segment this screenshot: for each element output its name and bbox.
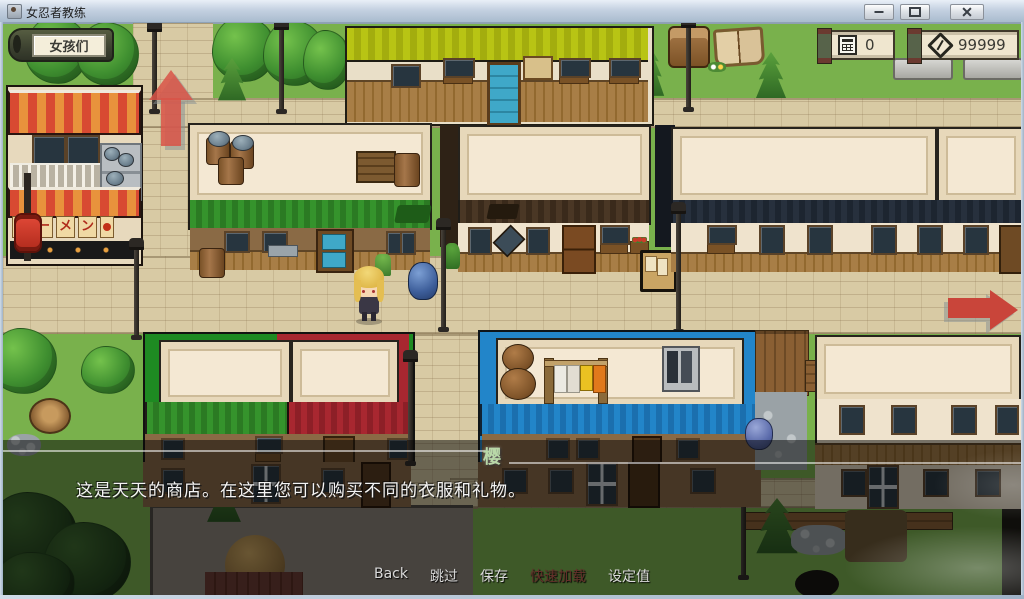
fog-glow	[933, 450, 1021, 520]
window	[559, 58, 591, 78]
right-arrow-head	[990, 290, 1018, 330]
window	[32, 135, 66, 165]
building-green-eave	[188, 123, 432, 268]
building-navy-eave	[655, 125, 1021, 270]
ramen-shop: ラ ー メ ン	[6, 85, 143, 266]
wainscot	[671, 252, 1021, 272]
rooftop	[671, 127, 937, 204]
window-shutters	[386, 231, 398, 251]
barrel-top	[232, 135, 254, 151]
counter-points: 0	[829, 30, 895, 60]
window	[609, 58, 641, 78]
rooftop	[458, 125, 651, 204]
minimize-button[interactable]	[864, 4, 894, 20]
red-lantern	[14, 213, 42, 253]
eave-emblem	[486, 204, 519, 219]
close-button[interactable]	[950, 4, 984, 20]
pot	[118, 153, 134, 167]
window-title: 女忍者教练	[26, 4, 86, 21]
menu-back[interactable]: Back	[374, 566, 408, 586]
hanging-cloth-yellow	[580, 365, 593, 391]
sprite-shadow	[356, 318, 382, 325]
tree	[303, 30, 351, 90]
sprite-eye	[372, 290, 375, 293]
up-arrow[interactable]	[147, 66, 197, 158]
window	[707, 225, 737, 245]
headband-knot-icon	[13, 35, 21, 53]
door	[562, 225, 596, 274]
tree	[3, 328, 57, 394]
flowers	[708, 62, 726, 72]
lamppost	[686, 26, 691, 110]
counter-gold-value: 99999	[958, 36, 1006, 54]
hanging-cloth-white	[567, 365, 580, 393]
keg-barrel	[218, 157, 244, 185]
bench	[893, 58, 953, 80]
dialogue-text: 这是天天的商店。在这里您可以购买不同的衣服和礼物。	[76, 476, 526, 501]
window	[951, 405, 977, 435]
menu-settings[interactable]: 设定值	[608, 566, 650, 586]
hanging-cloth-orange	[593, 365, 606, 393]
window	[600, 225, 630, 245]
ramen-sign-stamp	[100, 216, 114, 238]
girls-button[interactable]: 女孩们	[8, 28, 114, 62]
window-titlebar[interactable]: 女忍者教练	[0, 0, 1024, 23]
window	[871, 225, 897, 255]
roof-window	[662, 346, 700, 392]
eave-emblem	[394, 205, 432, 223]
keg-barrel	[394, 153, 420, 187]
lamppost	[279, 28, 284, 112]
bush	[81, 346, 135, 394]
speaker-divider-left	[3, 450, 487, 452]
lamppost	[676, 212, 681, 332]
app-window: ラ ー メ ン	[0, 0, 1024, 599]
eave-red	[287, 402, 413, 436]
roof-yellow	[347, 28, 648, 62]
window	[66, 135, 100, 165]
eave-blue	[480, 404, 763, 436]
wood-fence	[755, 330, 809, 396]
framed-picture	[468, 227, 492, 255]
eave-green	[145, 402, 291, 436]
rooftop	[815, 335, 1021, 403]
panel-band	[907, 28, 922, 64]
blue-vase	[408, 262, 438, 300]
door-blue-glass	[487, 62, 521, 126]
building-yellow-roof	[345, 26, 654, 126]
right-arrow[interactable]	[942, 288, 1020, 336]
rooftop	[291, 340, 399, 406]
door	[999, 225, 1021, 274]
game-viewport: ラ ー メ ン	[3, 22, 1021, 595]
dialogue-menu: Back 跳过 保存 快速加载 设定值	[3, 566, 1021, 586]
window	[963, 225, 989, 255]
pot	[106, 171, 124, 186]
window	[839, 405, 865, 435]
wall-picture	[523, 56, 553, 80]
window	[759, 225, 785, 255]
speaker-divider-right	[509, 462, 1021, 464]
rooftop	[496, 338, 744, 408]
hanging-cloth-white	[554, 365, 567, 393]
counter-points-value: 0	[865, 36, 875, 54]
lamppost	[441, 228, 446, 330]
window-border-bottom	[0, 595, 1024, 599]
bench	[963, 58, 1021, 80]
rooftop	[159, 340, 291, 406]
barrel-top	[208, 131, 230, 147]
window	[917, 225, 943, 255]
calculator-icon	[838, 35, 857, 55]
sprite-leg	[362, 312, 367, 321]
window	[224, 231, 250, 253]
girls-button-label: 女孩们	[32, 34, 106, 57]
right-arrow-stem	[948, 298, 990, 318]
wainscot	[458, 252, 649, 272]
player-character	[350, 266, 388, 326]
window	[391, 64, 421, 88]
menu-save[interactable]: 保存	[480, 566, 508, 586]
sprite-leg	[371, 312, 376, 321]
clay-jar	[500, 368, 536, 400]
up-arrow-stem	[161, 98, 181, 146]
sprite-hair-lock	[377, 280, 384, 302]
window-border-left	[0, 22, 3, 599]
eave-navy	[671, 200, 1021, 225]
ramen-sign-char: メ	[56, 216, 75, 238]
sprite-eye	[362, 290, 365, 293]
window	[995, 405, 1019, 435]
roof-hatch	[356, 151, 396, 183]
menu-quickload[interactable]: 快速加载	[530, 566, 586, 586]
window	[443, 58, 475, 78]
door-blue-panes	[316, 229, 354, 273]
window	[807, 225, 833, 255]
money-icon	[927, 32, 954, 59]
speaker-name: 樱	[483, 443, 501, 469]
building-brown-eave	[440, 125, 651, 270]
lamppost	[134, 248, 139, 338]
rooftop	[937, 127, 1021, 204]
window	[891, 405, 917, 435]
app-icon	[7, 4, 22, 19]
tree-stump	[29, 398, 71, 434]
up-arrow-head	[149, 70, 193, 100]
menu-skip[interactable]: 跳过	[430, 566, 458, 586]
framed-picture	[526, 227, 550, 255]
counter-gold: 99999	[919, 30, 1019, 60]
basin	[268, 245, 298, 257]
maximize-button[interactable]	[900, 4, 930, 20]
panel-band	[817, 28, 832, 64]
awning-top	[8, 90, 141, 135]
plant	[444, 243, 460, 269]
window-shutters	[400, 231, 412, 251]
ramen-sign-char: ン	[78, 216, 97, 238]
keg-barrel	[199, 248, 225, 278]
sprite-hair-lock	[354, 280, 361, 302]
